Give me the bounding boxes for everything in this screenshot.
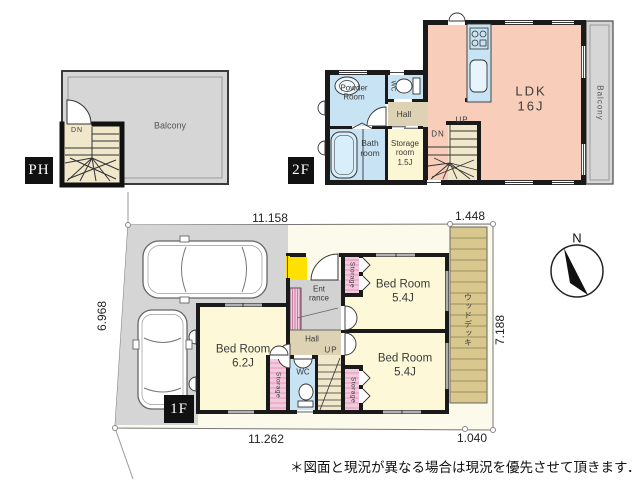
f1-shoe-cabinet-icon xyxy=(290,288,301,330)
disclaimer-note: ＊図面と現況が異なる場合は現況を優先させて頂きます． xyxy=(290,456,640,476)
ph-floor-tag-label: PH xyxy=(28,162,49,179)
f2-sink-icon xyxy=(470,60,487,92)
floor-plan-page: PH Balcony DN 2F LDK 16J Powder Room WC … xyxy=(0,0,640,480)
f2-floor-tag-label: 2F xyxy=(292,162,310,179)
f1-lot-leader-bottom xyxy=(115,428,133,479)
floor-plan-drawing xyxy=(0,0,640,480)
f2-storage-room-floor xyxy=(385,126,425,183)
f1-porch xyxy=(288,255,307,280)
ph-floor-tag: PH xyxy=(25,157,53,184)
f2-plan xyxy=(318,13,613,185)
f2-powder-sink-icon xyxy=(335,77,359,95)
ph-plan xyxy=(62,71,228,185)
f1-floor-tag-label: 1F xyxy=(170,401,188,418)
f2-kitchen-icon xyxy=(467,24,491,102)
car-top-icon xyxy=(143,236,267,303)
f1-hall-floor xyxy=(288,330,345,358)
f1-stair-floor xyxy=(318,355,345,412)
f1-floor-tag: 1F xyxy=(164,395,194,423)
compass-icon xyxy=(551,245,603,297)
f1-plan xyxy=(113,192,496,479)
f2-hall-floor xyxy=(385,99,425,128)
f2-toilet-icon xyxy=(396,78,420,94)
f1-wood-deck xyxy=(450,227,487,403)
f2-floor-tag: 2F xyxy=(288,157,314,184)
f2-stair-floor xyxy=(448,123,479,182)
f1-toilet-icon xyxy=(298,384,313,407)
